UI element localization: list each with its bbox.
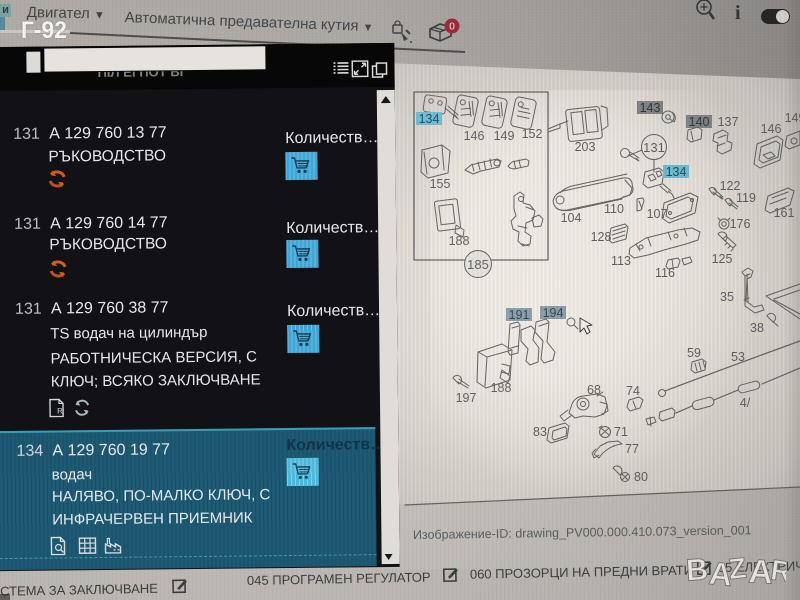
svg-text:119: 119 (736, 191, 756, 205)
svg-text:188: 188 (491, 381, 512, 395)
svg-text:134: 134 (419, 112, 440, 126)
svg-text:R: R (57, 406, 63, 415)
svg-text:0: 0 (449, 22, 455, 33)
svg-text:143: 143 (640, 101, 661, 115)
svg-text:53: 53 (731, 350, 745, 364)
svg-text:125: 125 (712, 252, 733, 266)
svg-text:140: 140 (689, 115, 710, 129)
svg-text:203: 203 (575, 140, 596, 154)
svg-text:155: 155 (430, 177, 451, 191)
svg-text:74: 74 (626, 384, 640, 398)
svg-text:77: 77 (625, 442, 639, 456)
svg-text:71: 71 (614, 425, 628, 439)
svg-text:191: 191 (509, 308, 530, 322)
svg-text:4/: 4/ (740, 396, 751, 410)
svg-text:149: 149 (494, 129, 515, 143)
svg-text:185: 185 (467, 257, 489, 272)
svg-text:152: 152 (522, 127, 543, 141)
svg-text:131: 131 (643, 140, 665, 155)
svg-text:197: 197 (456, 391, 477, 405)
svg-text:107: 107 (647, 207, 668, 221)
svg-text:104: 104 (561, 211, 582, 225)
svg-text:110: 110 (604, 202, 624, 216)
svg-text:116: 116 (655, 266, 675, 280)
svg-text:Изображение-ID: drawing_PV000.: Изображение-ID: drawing_PV000.000.410.07… (413, 523, 752, 542)
svg-text:113: 113 (611, 254, 631, 268)
svg-text:128: 128 (591, 230, 612, 244)
svg-text:146: 146 (761, 122, 782, 136)
svg-text:146: 146 (464, 129, 485, 143)
svg-text:137: 137 (718, 115, 739, 129)
svg-text:176: 176 (730, 217, 751, 231)
svg-text:194: 194 (543, 306, 564, 320)
svg-text:38: 38 (750, 321, 764, 335)
svg-text:188: 188 (449, 234, 470, 248)
svg-text:59: 59 (687, 346, 701, 360)
svg-text:134: 134 (666, 165, 687, 179)
svg-text:80: 80 (634, 470, 648, 484)
svg-text:Z: Z (727, 553, 748, 587)
svg-text:68: 68 (587, 383, 601, 397)
svg-text:35: 35 (720, 290, 734, 304)
svg-text:83: 83 (533, 425, 547, 439)
svg-text:B: B (685, 552, 709, 587)
